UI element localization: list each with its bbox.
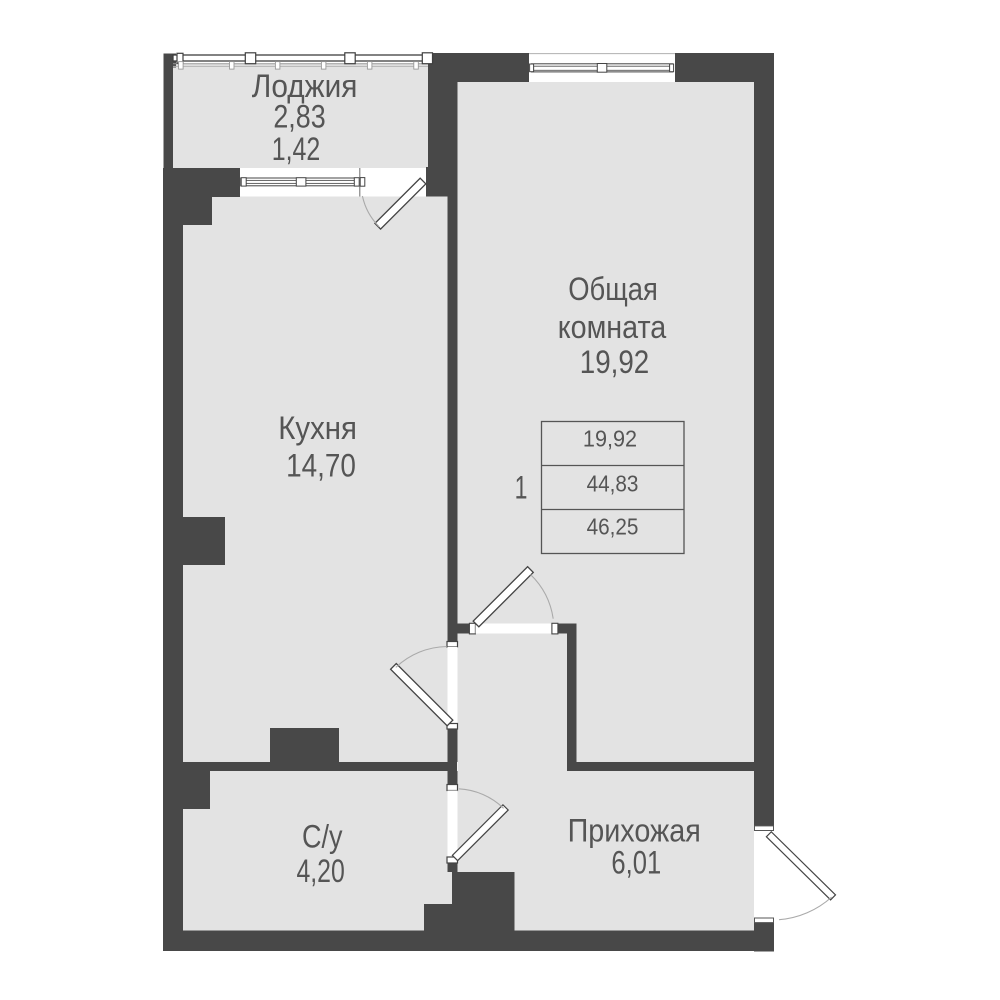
- svg-text:1,42: 1,42: [272, 132, 321, 168]
- svg-text:19,92: 19,92: [580, 345, 649, 380]
- svg-text:комната: комната: [558, 310, 667, 346]
- svg-text:Общая: Общая: [568, 272, 658, 307]
- svg-text:46,25: 46,25: [587, 514, 639, 540]
- svg-text:Кухня: Кухня: [278, 410, 357, 446]
- svg-text:6,01: 6,01: [611, 846, 661, 881]
- svg-text:4,20: 4,20: [296, 854, 344, 890]
- svg-text:1: 1: [515, 470, 528, 506]
- svg-text:44,83: 44,83: [587, 471, 639, 497]
- svg-text:14,70: 14,70: [286, 449, 356, 484]
- svg-text:19,92: 19,92: [583, 426, 637, 452]
- svg-text:Прихожая: Прихожая: [568, 813, 701, 849]
- svg-text:2,83: 2,83: [273, 100, 325, 136]
- svg-text:С/у: С/у: [302, 819, 343, 855]
